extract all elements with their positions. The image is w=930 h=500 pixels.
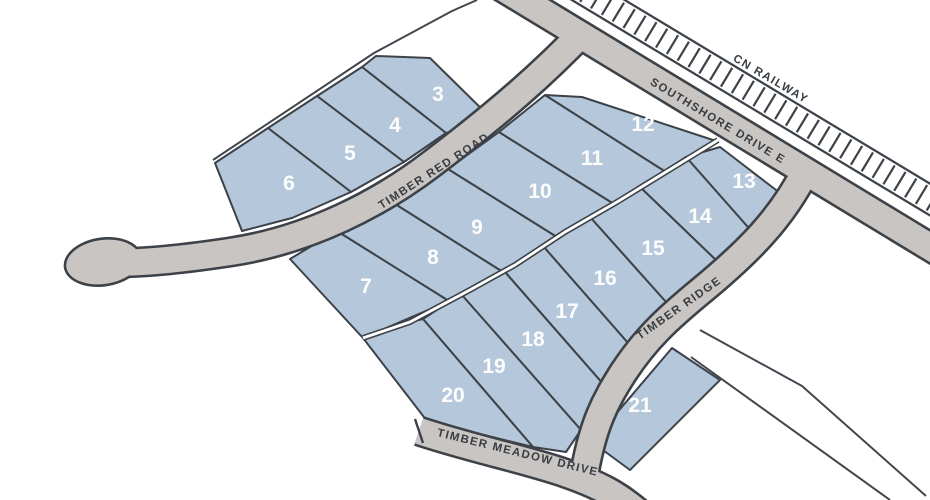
lot-number-9: 9 xyxy=(471,216,483,239)
east-parcel-line-1 xyxy=(700,330,926,496)
lot-number-20: 20 xyxy=(441,384,464,407)
lot-number-18: 18 xyxy=(521,328,545,351)
lot-number-17: 17 xyxy=(555,300,578,323)
lot-number-16: 16 xyxy=(593,267,616,290)
lot-number-14: 14 xyxy=(688,205,712,228)
lot-number-7: 7 xyxy=(360,275,372,298)
east-parcel-line-2 xyxy=(691,357,890,500)
lot-number-13: 13 xyxy=(732,170,755,193)
lot-number-8: 8 xyxy=(427,246,439,269)
lot-number-3: 3 xyxy=(432,83,444,106)
lot-number-12: 12 xyxy=(631,113,654,136)
lot-number-15: 15 xyxy=(641,237,665,260)
lot-number-21: 21 xyxy=(628,394,652,417)
lot-number-19: 19 xyxy=(482,355,505,378)
lot-number-5: 5 xyxy=(344,142,356,165)
lot-number-10: 10 xyxy=(528,180,551,203)
lot-number-11: 11 xyxy=(581,147,604,170)
subdivision-plat-map: SOUTHSHORE DRIVE ETIMBER RED ROADTIMBER … xyxy=(0,0,930,500)
plat-svg: SOUTHSHORE DRIVE ETIMBER RED ROADTIMBER … xyxy=(0,0,930,500)
lot-number-4: 4 xyxy=(389,114,401,137)
lot-number-6: 6 xyxy=(283,172,295,195)
